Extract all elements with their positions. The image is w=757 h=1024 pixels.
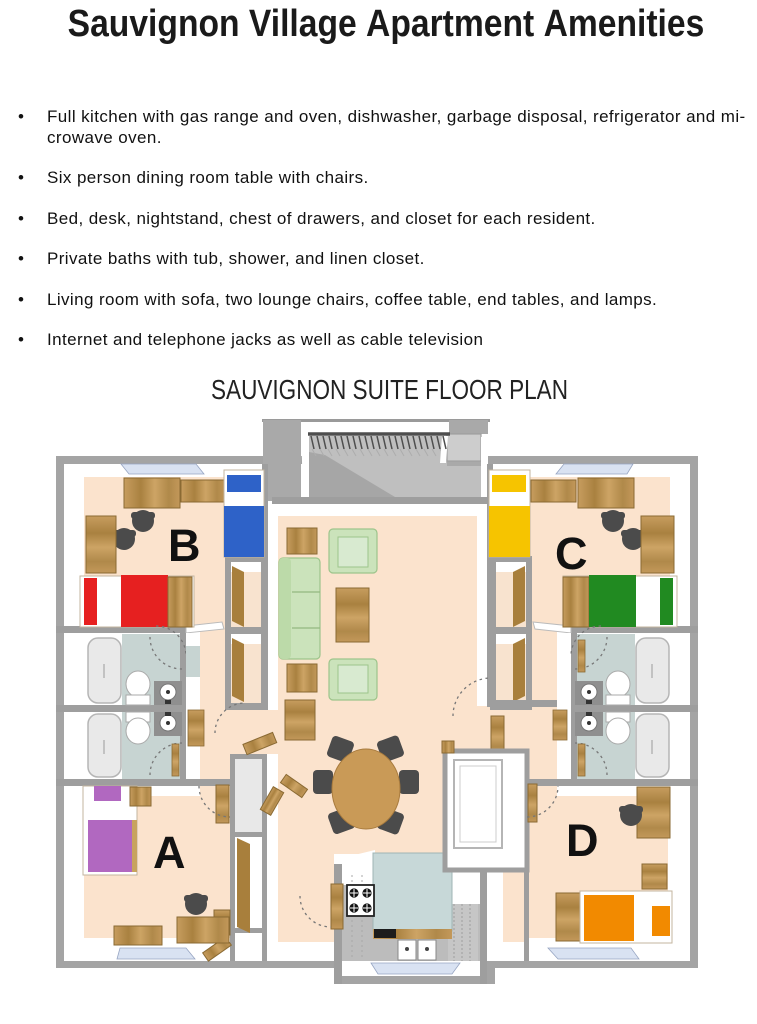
svg-text:A: A <box>153 827 186 878</box>
svg-text:C: C <box>555 528 588 579</box>
svg-text:B: B <box>168 520 201 571</box>
svg-text:D: D <box>566 815 599 866</box>
